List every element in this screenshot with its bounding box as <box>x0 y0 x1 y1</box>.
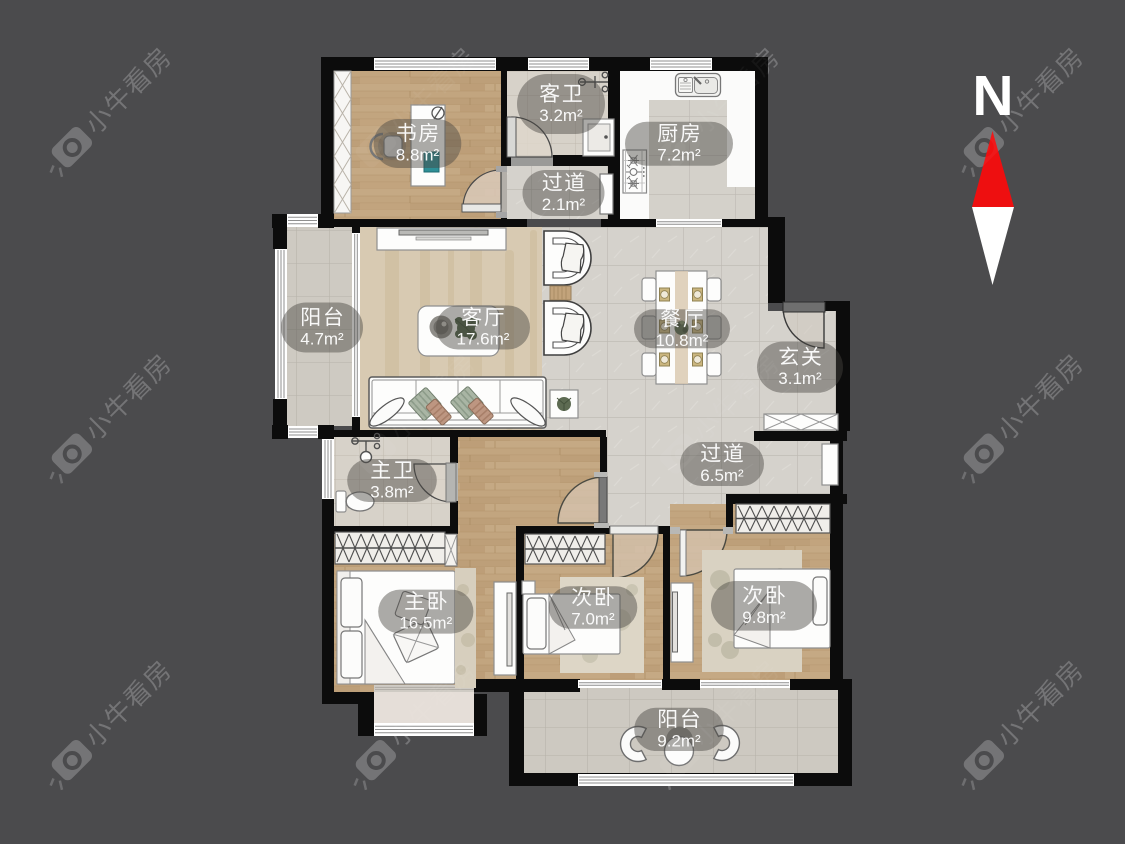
svg-text:6.5m²: 6.5m² <box>700 466 744 485</box>
svg-text:3.8m²: 3.8m² <box>370 483 414 502</box>
svg-text:8.8m²: 8.8m² <box>396 146 440 165</box>
svg-text:3.2m²: 3.2m² <box>539 106 583 125</box>
svg-text:9.8m²: 9.8m² <box>742 608 786 627</box>
svg-text:16.5m²: 16.5m² <box>399 614 452 633</box>
svg-text:N: N <box>972 64 1013 128</box>
svg-text:10.8m²: 10.8m² <box>656 331 709 350</box>
svg-text:2.1m²: 2.1m² <box>542 195 586 214</box>
svg-text:7.0m²: 7.0m² <box>571 610 615 629</box>
svg-text:4.7m²: 4.7m² <box>300 330 344 349</box>
svg-text:17.6m²: 17.6m² <box>457 330 510 349</box>
svg-text:3.1m²: 3.1m² <box>778 369 822 388</box>
